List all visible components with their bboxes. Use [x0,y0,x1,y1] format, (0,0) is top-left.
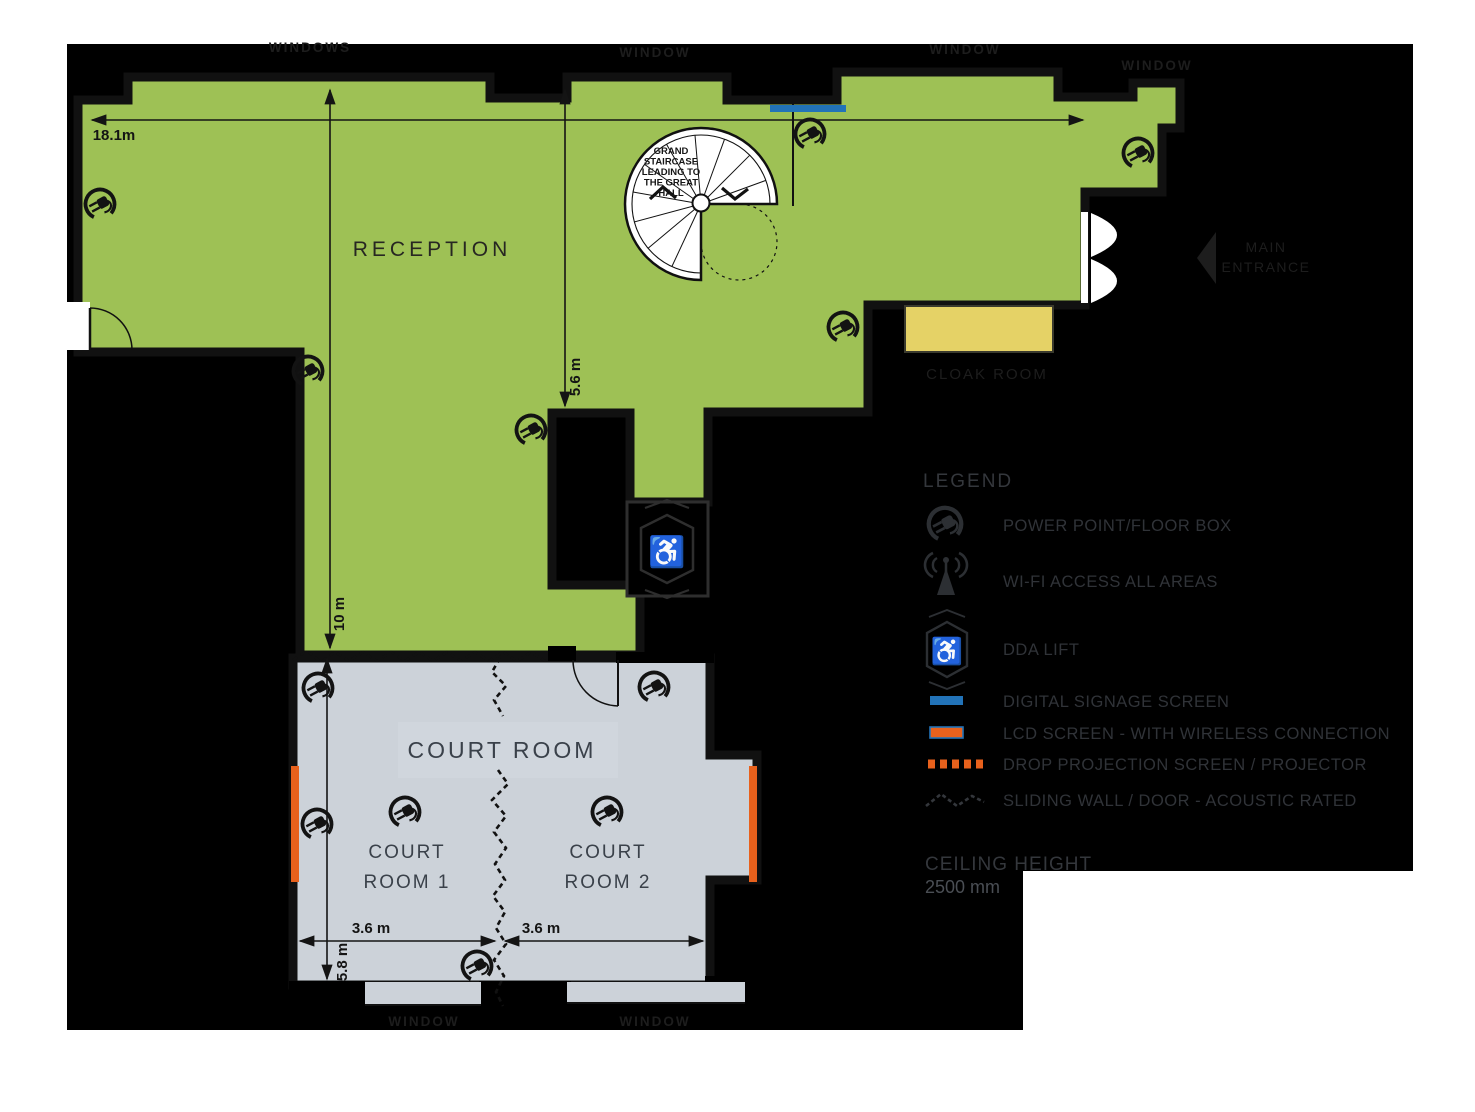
court-room1-label-line2: ROOM 1 [364,872,451,893]
court-room1-label-line1: COURT [368,842,445,863]
wheelchair-icon: ♿ [931,636,963,666]
staircase-note-line5: HALL [658,188,684,199]
digital-signage-screen [770,105,846,112]
dim-reception-depth: 5.6 m [567,358,584,396]
dim-court1-width: 3.6 m [352,920,390,937]
entrance-label-line2: ENTRANCE [1221,259,1310,275]
reception-label: RECEPTION [353,238,512,261]
lcd-screen-swatch [930,727,963,738]
window-label-top-right: WINDOW [929,42,1000,57]
legend-item-label: DIGITAL SIGNAGE SCREEN [1003,693,1229,711]
window-label-bottom-left: WINDOW [388,1014,459,1029]
entrance-label-line1: MAIN [1246,239,1287,255]
dda-lift: ♿ [627,500,708,598]
dim-reception-height: 10 m [331,597,348,631]
window-label-bottom-right: WINDOW [619,1014,690,1029]
legend-item-label: WI-FI ACCESS ALL AREAS [1003,573,1218,591]
staircase-note-line4: THE GREAT [644,178,698,189]
ceiling-height-label: CEILING HEIGHT [925,854,1092,875]
cloak-room [905,306,1053,352]
court-window-strip [567,982,745,1004]
cloak-room-label: CLOAK ROOM [926,366,1048,383]
legend-item-label: SLIDING WALL / DOOR - ACOUSTIC RATED [1003,792,1357,810]
legend-item-label: DROP PROJECTION SCREEN / PROJECTOR [1003,756,1367,774]
legend-item-label: LCD SCREEN - WITH WIRELESS CONNECTION [1003,725,1390,743]
staircase-note-line1: GRAND [654,146,689,157]
court-wall-segment [289,981,365,1008]
window-label-top-left: WINDOWS [269,40,351,55]
floor-plan-canvas: GRAND STAIRCASE LEADING TO THE GREAT HAL… [0,0,1475,1112]
digital-signage-swatch [930,696,963,705]
window-label-top-mid: WINDOW [619,45,690,60]
dim-court2-width: 3.6 m [522,920,560,937]
court-wall-stub [548,646,576,661]
dim-overall-width: 18.1m [93,127,136,144]
legend-item-label: POWER POINT/FLOOR BOX [1003,517,1232,535]
ceiling-height-value: 2500 mm [925,877,1000,897]
court-wall-segment [479,981,571,1008]
dim-court-depth: 5.8 m [334,943,351,981]
lcd-screen-left [291,766,299,882]
staircase-note-line2: STAIRCASE [644,157,698,168]
legend-item-label: DDA LIFT [1003,641,1079,659]
court-window-strip [365,982,481,1006]
court-room-label: COURT ROOM [408,737,597,763]
legend-title: LEGEND [923,471,1013,492]
floor-plan-page: GRAND STAIRCASE LEADING TO THE GREAT HAL… [0,0,1475,1112]
window-label-top-far-right: WINDOW [1121,58,1192,73]
court-top-wall [616,652,714,663]
wheelchair-icon: ♿ [648,534,685,569]
staircase-note-line3: LEADING TO [642,167,700,178]
court-room2-label-line2: ROOM 2 [565,872,652,893]
lcd-screen-right [749,766,757,882]
side-door-opening [64,302,90,350]
court-room2-label-line1: COURT [569,842,646,863]
